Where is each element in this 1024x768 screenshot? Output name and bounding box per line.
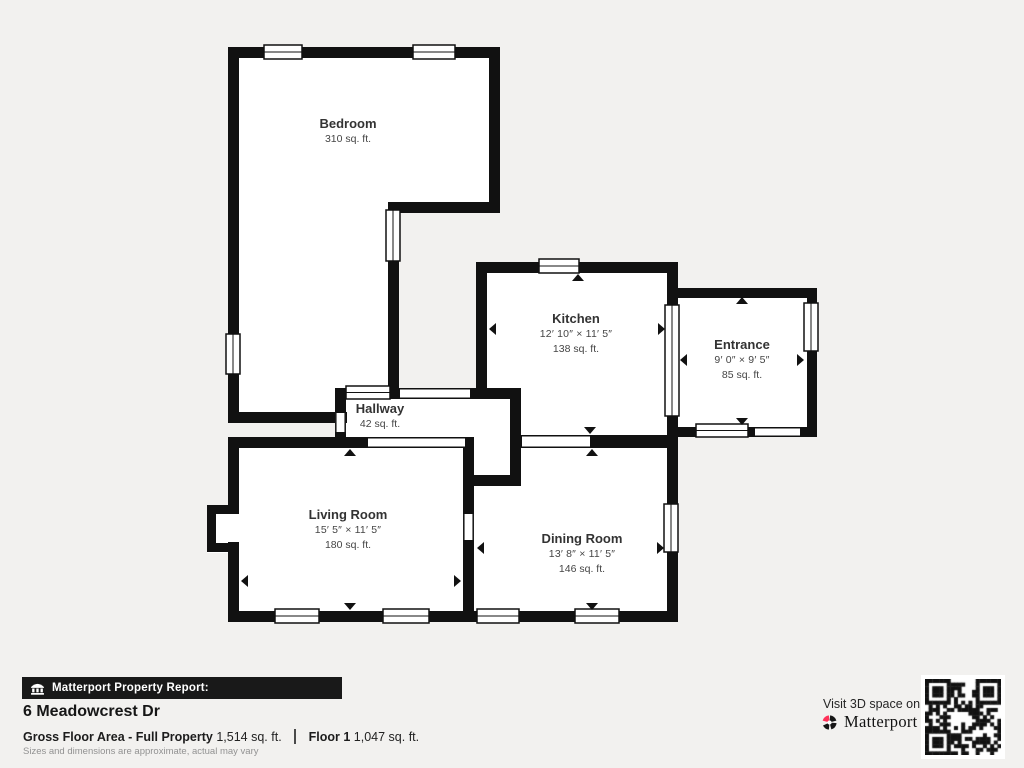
banner-label: Matterport Property Report:: [52, 682, 209, 694]
room-label-living-room: Living Room 15′ 5″ × 11′ 5″ 180 sq. ft.: [309, 508, 388, 550]
floor-value: 1,047 sq. ft.: [354, 730, 419, 744]
report-banner: Matterport Property Report:: [22, 677, 342, 699]
room-name: Hallway: [356, 402, 404, 415]
room-name: Dining Room: [542, 532, 623, 545]
disclaimer-text: Sizes and dimensions are approximate, ac…: [23, 746, 259, 757]
qr-code: [921, 675, 1005, 759]
room-name: Entrance: [714, 338, 770, 351]
floor-label: Floor 1: [309, 730, 351, 744]
room-label-hallway: Hallway 42 sq. ft.: [356, 402, 404, 430]
separator: [294, 729, 296, 744]
qr-code-pattern: [925, 679, 1001, 755]
room-label-bedroom: Bedroom 310 sq. ft.: [319, 117, 376, 145]
room-dimensions: 13′ 8″ × 11′ 5″: [542, 549, 623, 560]
matterport-wordmark: Matterport: [844, 712, 918, 732]
gross-floor-area-value: 1,514 sq. ft.: [216, 730, 281, 744]
visit-3d-text: Visit 3D space on: [823, 697, 920, 711]
matterport-logo: Matterport ™: [820, 712, 929, 732]
gross-floor-area-label: Gross Floor Area - Full Property: [23, 730, 213, 744]
floor-plan: [0, 0, 1024, 768]
room-area: 85 sq. ft.: [714, 370, 770, 381]
room-area: 42 sq. ft.: [356, 419, 404, 430]
room-dimensions: 15′ 5″ × 11′ 5″: [309, 525, 388, 536]
room-area: 180 sq. ft.: [309, 540, 388, 551]
room-dimensions: 12′ 10″ × 11′ 5″: [540, 329, 612, 340]
room-area: 138 sq. ft.: [540, 344, 612, 355]
building-icon: [30, 682, 45, 695]
room-area: 146 sq. ft.: [542, 564, 623, 575]
matterport-pinwheel-icon: [820, 713, 839, 732]
room-dimensions: 9′ 0″ × 9′ 5″: [714, 355, 770, 366]
room-area: 310 sq. ft.: [319, 134, 376, 145]
property-address: 6 Meadowcrest Dr: [23, 703, 160, 721]
room-fills: [207, 47, 817, 622]
room-name: Bedroom: [319, 117, 376, 130]
room-label-entrance: Entrance 9′ 0″ × 9′ 5″ 85 sq. ft.: [714, 338, 770, 380]
room-name: Kitchen: [540, 312, 612, 325]
floor-area-line: Gross Floor Area - Full Property 1,514 s…: [23, 726, 419, 744]
room-label-dining-room: Dining Room 13′ 8″ × 11′ 5″ 146 sq. ft.: [542, 532, 623, 574]
room-name: Living Room: [309, 508, 388, 521]
room-label-kitchen: Kitchen 12′ 10″ × 11′ 5″ 138 sq. ft.: [540, 312, 612, 354]
